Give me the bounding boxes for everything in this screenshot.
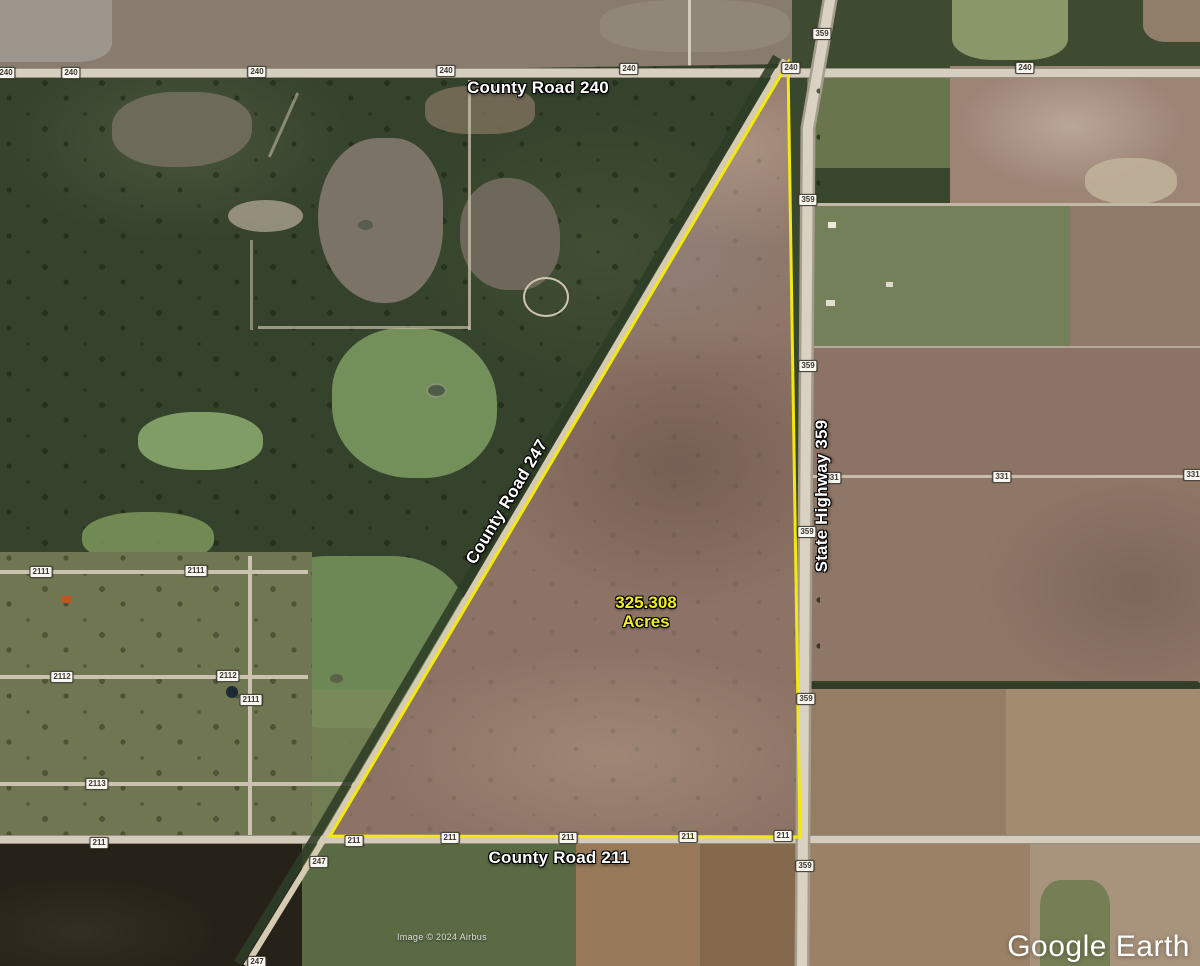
satellite-map-viewport[interactable]: 2402402402402402402403593593593593593592… bbox=[0, 0, 1200, 966]
road-number-badge: 240 bbox=[619, 63, 638, 75]
road-number-badge: 211 bbox=[90, 837, 109, 849]
road-number-badge: 331 bbox=[992, 471, 1011, 483]
road-number-badge: 211 bbox=[441, 832, 460, 844]
road-number-badge: 240 bbox=[247, 66, 266, 78]
label-state-highway-359: State Highway 359 bbox=[812, 420, 832, 573]
road-number-badge: 240 bbox=[781, 62, 800, 74]
road-number-badge: 247 bbox=[309, 856, 328, 868]
google-earth-logo: Google Earth bbox=[1007, 930, 1190, 964]
road-number-badge: 359 bbox=[795, 860, 814, 872]
road-number-badge: 240 bbox=[61, 67, 80, 79]
road-badges-layer: 2402402402402402402403593593593593593592… bbox=[0, 0, 1200, 966]
road-number-badge: 359 bbox=[796, 693, 815, 705]
acreage-value: 325.308 bbox=[615, 593, 676, 612]
road-number-badge: 2111 bbox=[30, 566, 53, 578]
road-number-badge: 331 bbox=[1183, 469, 1200, 481]
road-number-badge: 359 bbox=[798, 194, 817, 206]
road-number-badge: 2112 bbox=[216, 670, 239, 682]
road-number-badge: 211 bbox=[559, 832, 578, 844]
road-number-badge: 2113 bbox=[85, 778, 108, 790]
road-number-badge: 240 bbox=[0, 67, 16, 79]
label-county-road-211: County Road 211 bbox=[489, 848, 630, 868]
road-number-badge: 359 bbox=[798, 360, 817, 372]
road-number-badge: 240 bbox=[436, 65, 455, 77]
imagery-attribution: Image © 2024 Airbus bbox=[397, 932, 487, 942]
road-number-badge: 240 bbox=[1015, 62, 1034, 74]
label-county-road-240: County Road 240 bbox=[467, 78, 609, 98]
road-number-badge: 211 bbox=[774, 830, 793, 842]
road-number-badge: 2112 bbox=[50, 671, 73, 683]
logo-earth: Earth bbox=[1116, 930, 1190, 963]
logo-google: Google bbox=[1007, 930, 1107, 963]
acreage-label: 325.308 Acres bbox=[615, 593, 676, 631]
acreage-unit: Acres bbox=[615, 612, 676, 631]
road-number-badge: 359 bbox=[812, 28, 831, 40]
road-number-badge: 211 bbox=[679, 831, 698, 843]
road-number-badge: 247 bbox=[247, 956, 266, 966]
road-number-badge: 211 bbox=[345, 835, 364, 847]
road-number-badge: 2111 bbox=[185, 565, 208, 577]
road-number-badge: 2111 bbox=[240, 694, 263, 706]
